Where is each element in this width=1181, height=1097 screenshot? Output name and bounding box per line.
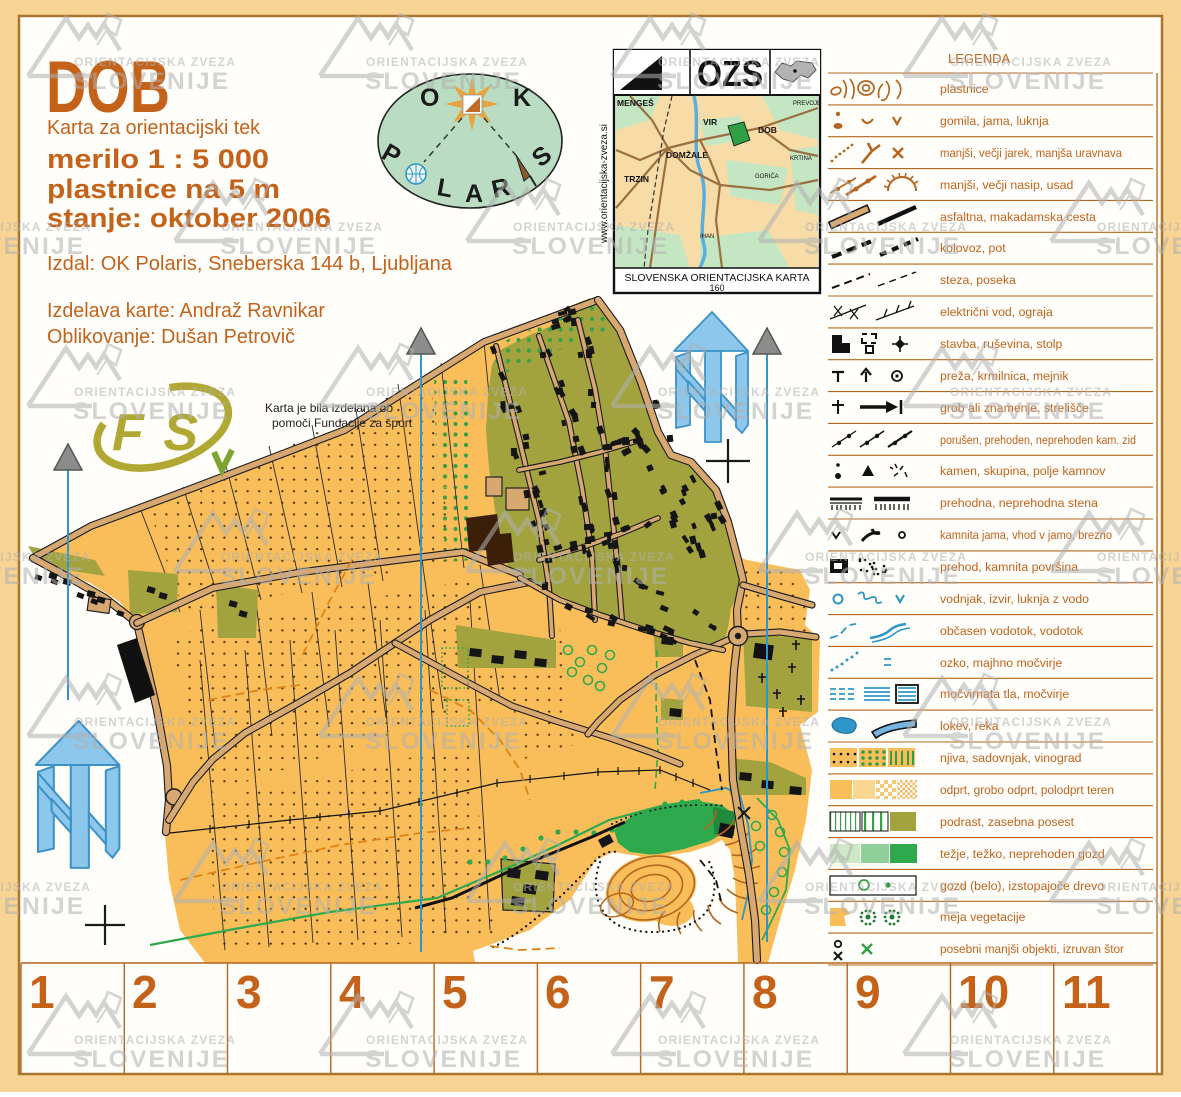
svg-text:prehodna, neprehodna stena: prehodna, neprehodna stena: [940, 496, 1098, 510]
svg-text:manjši, večji nasip, usad: manjši, večji nasip, usad: [940, 178, 1073, 192]
svg-text:Karta za orientacijski tek: Karta za orientacijski tek: [47, 117, 261, 139]
svg-text:porušen, prehoden, neprehoden: porušen, prehoden, neprehoden kam. zid: [940, 433, 1136, 447]
svg-text:GORIČA: GORIČA: [755, 173, 779, 180]
svg-text:manjši, večji jarek, manjša ur: manjši, večji jarek, manjša uravnava: [940, 146, 1122, 160]
svg-text:KRTINA: KRTINA: [790, 156, 812, 162]
svg-text:11: 11: [1062, 966, 1111, 1018]
svg-text:steza, poseka: steza, poseka: [940, 273, 1016, 287]
svg-text:vodnjak, izvir, luknja z vodo: vodnjak, izvir, luknja z vodo: [940, 592, 1089, 606]
svg-text:merilo 1 : 5 000: merilo 1 : 5 000: [47, 144, 269, 174]
svg-text:8: 8: [752, 966, 778, 1018]
svg-text:IHAN: IHAN: [700, 234, 714, 240]
svg-text:PREVOJE: PREVOJE: [793, 101, 821, 107]
svg-text:3: 3: [236, 966, 262, 1018]
svg-text:VIR: VIR: [703, 117, 717, 127]
svg-text:5: 5: [442, 966, 468, 1018]
svg-text:4: 4: [339, 966, 365, 1018]
svg-text:gomila, jama, luknja: gomila, jama, luknja: [940, 114, 1049, 128]
svg-text:občasen vodotok, vodotok: občasen vodotok, vodotok: [940, 624, 1084, 638]
svg-text:odprt, grobo odprt, polodprt t: odprt, grobo odprt, polodprt teren: [940, 783, 1114, 797]
svg-text:ozko, majhno močvirje: ozko, majhno močvirje: [940, 656, 1062, 670]
svg-text:DOB: DOB: [758, 125, 777, 135]
svg-text:MENGEŠ: MENGEŠ: [617, 97, 654, 108]
svg-text:kamnita jama, vhod v jamo, bre: kamnita jama, vhod v jamo, brezno: [940, 528, 1112, 542]
svg-text:kamen, skupina, polje kamnov: kamen, skupina, polje kamnov: [940, 464, 1106, 478]
svg-text:podrast, zasebna posest: podrast, zasebna posest: [940, 815, 1075, 829]
svg-text:160: 160: [709, 283, 724, 293]
svg-text:električni vod, ograja: električni vod, ograja: [940, 305, 1053, 319]
svg-text:preža, krmilnica, mejnik: preža, krmilnica, mejnik: [940, 369, 1069, 383]
svg-text:posebni manjši objekti, izruva: posebni manjši objekti, izruvan štor: [940, 942, 1124, 956]
svg-text:TRZIN: TRZIN: [624, 174, 649, 184]
svg-text:Oblikovanje: Dušan Petrovič: Oblikovanje: Dušan Petrovič: [47, 326, 295, 348]
svg-text:stavba, ruševina, stolp: stavba, ruševina, stolp: [940, 337, 1063, 351]
svg-text:DOMŽALE: DOMŽALE: [666, 149, 708, 160]
svg-text:Izdelava karte: Andraž Ravnika: Izdelava karte: Andraž Ravnikar: [47, 300, 325, 322]
svg-text:2: 2: [132, 966, 158, 1018]
svg-text:6: 6: [545, 966, 571, 1018]
svg-text:9: 9: [855, 966, 881, 1018]
svg-text:1: 1: [29, 966, 55, 1018]
svg-text:A: A: [465, 180, 483, 208]
